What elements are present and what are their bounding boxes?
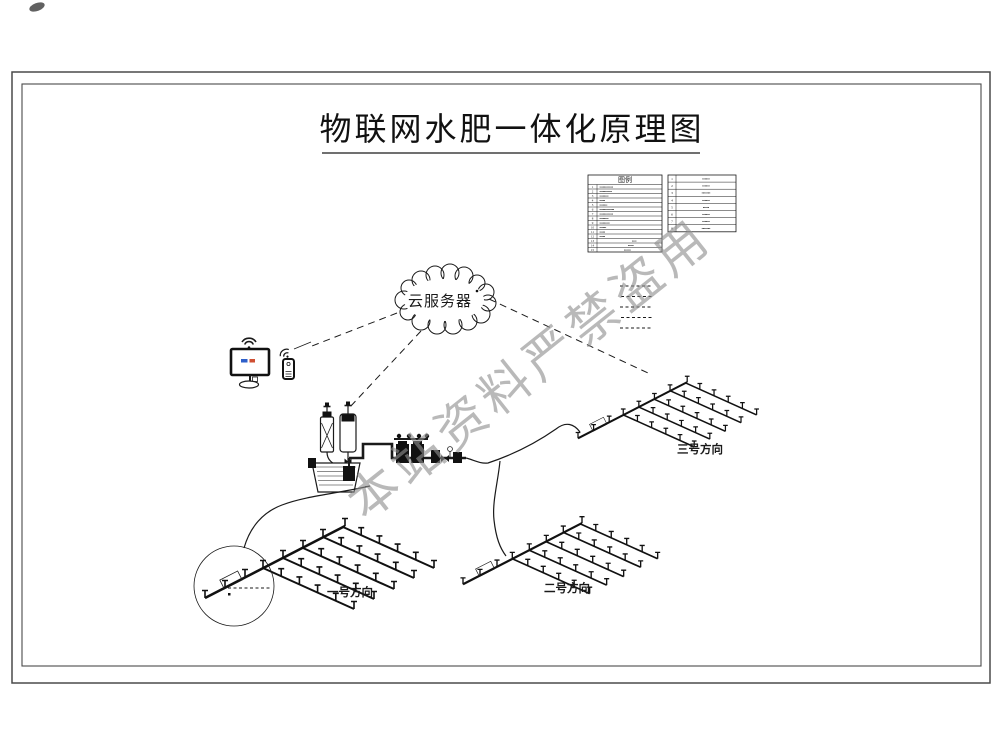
signal-line [294,342,311,349]
field-2-label: 二号方向 [544,581,590,595]
legend-row-no: 11 [591,230,594,234]
legend-row-label: ▪▪▪▪▪▪ [702,213,709,217]
legend-row-label: ▪▪▪▪▪ [703,205,709,209]
legend-row-no: 3 [671,191,673,195]
legend-row-label: ▪▪▪▪▪▪ [702,177,709,181]
detail-callout-circle [194,546,274,626]
detail-annotation-dot [228,593,231,596]
legend-row-no: 4 [671,198,673,202]
legend-row-label: ▪▪▪▪▪▪ [702,184,709,188]
legend-row-label: ▪▪▪▪▪▪▪▪ [600,194,609,198]
watermark: 本站资料严禁盗用 [337,208,722,531]
field-3-label: 三号方向 [677,442,723,456]
legend-row-label: ▪▪▪▪▪▪▪▪▪ [600,221,610,225]
legend-row-no: 7 [592,212,594,216]
link-cloud-to-client [312,313,397,346]
cloud-dot [476,290,479,293]
cloud-server-label: 云服务器 [408,293,472,310]
legend-row-no: 9 [592,221,594,225]
legend-row-no: 6 [592,208,594,212]
legend-row-label: ▪▪▪▪▪ [600,235,606,239]
legend-row-no: 12 [591,235,595,239]
schematic-canvas: 物联网水肥一体化原理图 图例 1▪▪▪▪▪▪▪▪▪▪▪▪ 2▪▪▪▪▪▪▪▪▪▪… [0,0,1000,750]
mobile-device [278,342,311,379]
monitor-base [240,381,259,388]
legend-row-label: ▪▪▪▪ [632,239,637,243]
legend-row-label: ▪▪▪▪▪▪▪▪▪▪▪▪ [600,212,614,216]
legend-row-label: ▪▪▪▪▪▪▪ [702,191,711,195]
legend-row-no: 5 [671,205,673,209]
legend-row-no: 1 [671,177,673,181]
screen-content-blue [241,359,248,363]
legend-row-no: 4 [592,199,594,203]
field-1-label: 一号方向 [327,585,373,599]
legend-row-no: 13 [591,239,595,243]
legend-row-label: ▪▪▪▪▪▪ [702,198,709,202]
legend-row-label: ▪▪▪▪▪▪▪▪▪▪▪▪ [600,185,614,189]
aux-pump [308,458,316,468]
legend-row-label: ▪▪▪▪▪▪ [702,220,709,224]
field-3 [576,376,759,447]
legend-row-no: 10 [591,226,595,230]
legend-row-label: ▪▪▪▪▪ [600,230,606,234]
legend-row-label: ▪▪▪▪▪▪▪▪ [600,217,609,221]
legend-row-no: 15 [591,248,595,252]
legend-row-no: 8 [592,217,594,221]
legend-row-no: 14 [591,244,595,248]
fertilizer-tank-a [321,403,334,453]
legend-row-no: 3 [592,194,594,198]
legend-row-label: ▪▪▪▪▪▪▪▪▪▪▪ [600,190,612,194]
legend-row-label: ▪▪▪▪▪▪▪ [600,203,608,207]
link-cloud-to-station [350,331,421,407]
field-1 [202,519,437,610]
wifi-icon [242,338,256,344]
legend-row-no: 1 [592,185,594,189]
legend-header: 图例 [618,175,632,184]
screen-content-red [250,359,256,363]
pipe-to-field2 [494,461,506,556]
legend-row-label: ▪▪▪▪▪ [628,244,634,248]
page-title: 物联网水肥一体化原理图 [319,111,704,147]
cloud-server: 云服务器 [395,264,496,334]
legend-row-label: ▪▪▪▪▪ [600,199,606,203]
monitor [231,338,269,388]
drawing-sheet: 物联网水肥一体化原理图 图例 1▪▪▪▪▪▪▪▪▪▪▪▪ 2▪▪▪▪▪▪▪▪▪▪… [0,0,1000,750]
legend-row-no: 5 [592,203,594,207]
fertilizer-tank-b [340,402,356,453]
legend-row-no: 2 [592,190,594,194]
legend-row-label: ▪▪▪▪▪▪▪▪▪▪▪▪▪ [600,208,615,212]
legend-row-label: ▪▪▪▪▪▪ [600,226,607,230]
scan-artifact [28,1,46,14]
legend-row-no: 2 [671,184,673,188]
legend-row-no: 6 [671,213,673,217]
legend-row-label: ▪▪▪▪▪▪ [624,248,631,252]
